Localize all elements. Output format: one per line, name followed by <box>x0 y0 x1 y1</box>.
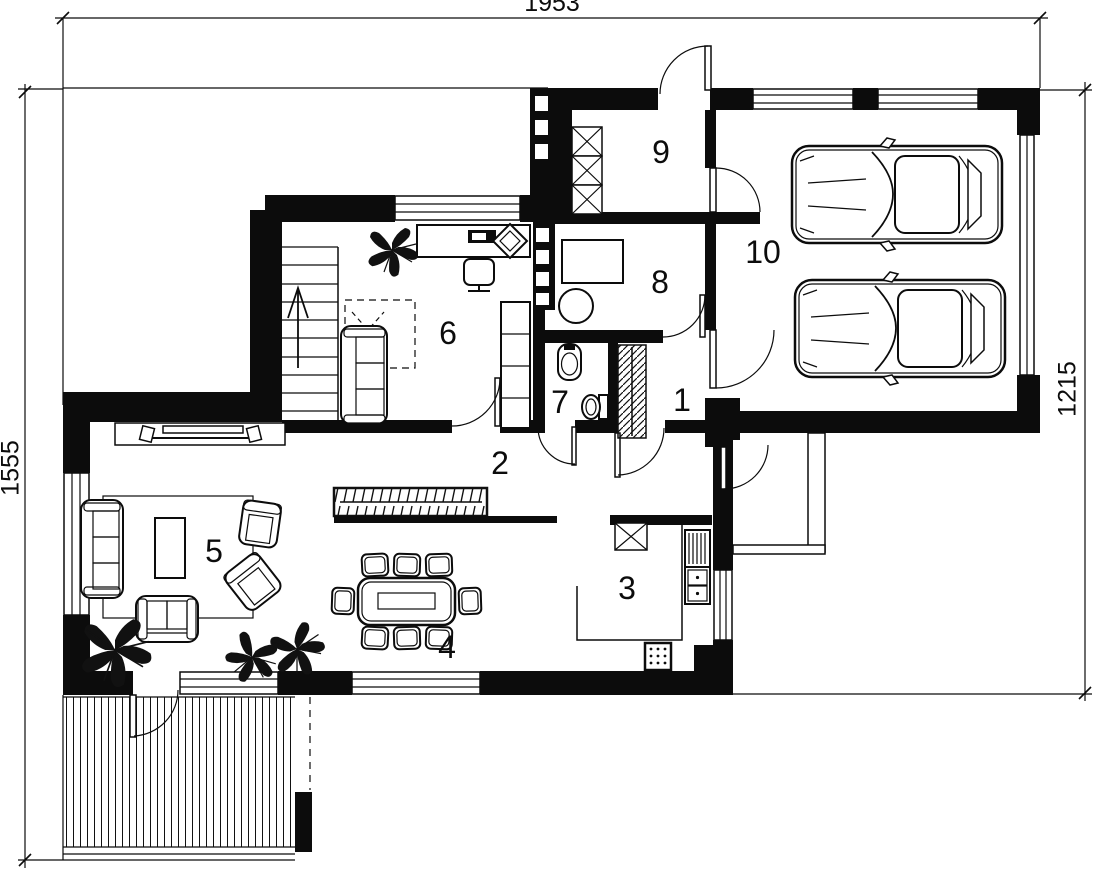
chair-icon <box>361 553 388 576</box>
plant-icon <box>367 228 419 279</box>
speaker-icon <box>246 426 261 442</box>
armchair-icon <box>238 500 282 549</box>
fridge-icon <box>685 530 710 567</box>
room-label-4: 4 <box>438 631 456 663</box>
chair-icon <box>332 588 355 615</box>
dining-table <box>358 578 455 625</box>
room-label-7: 7 <box>551 386 569 418</box>
office-window <box>395 196 520 220</box>
room-label-2: 2 <box>491 447 509 479</box>
living-south-window <box>180 672 278 694</box>
speaker-icon <box>139 426 154 442</box>
sofa-icon <box>81 500 123 598</box>
stove-icon <box>685 567 710 604</box>
garage-window <box>878 89 978 109</box>
low-wall <box>733 433 825 554</box>
pantry-cabinet-icon <box>615 523 647 550</box>
chair-icon <box>394 554 421 577</box>
garage-gate <box>1020 135 1034 375</box>
room8-furniture <box>559 240 623 323</box>
sink-icon <box>645 643 671 670</box>
room-label-1: 1 <box>673 384 691 416</box>
hall-wardrobe <box>334 488 557 523</box>
armchair-icon <box>222 551 283 613</box>
kitchen-furniture <box>577 523 710 670</box>
living-room-furniture <box>81 423 285 642</box>
door-room9-garage <box>710 168 760 212</box>
deck-post <box>295 792 312 852</box>
round-chair-icon <box>559 289 593 323</box>
door-hall-garage <box>710 330 774 388</box>
chair-icon <box>394 627 421 650</box>
room-label-8: 8 <box>651 266 669 298</box>
floor-plan: 1 2 3 4 5 6 7 8 9 10 1953 1555 1215 <box>0 0 1108 872</box>
sofa-icon <box>341 326 387 424</box>
washbasin-icon <box>558 344 581 380</box>
office-furniture <box>341 224 530 428</box>
room-label-9: 9 <box>652 136 670 168</box>
dimension-right: 1215 <box>1056 361 1081 417</box>
chair-icon <box>361 626 388 649</box>
office-chair-icon <box>464 259 494 291</box>
door-room6 <box>452 378 500 426</box>
coat-wardrobe <box>618 345 646 438</box>
kitchen-east-window <box>714 570 732 640</box>
room-label-5: 5 <box>205 535 223 567</box>
table <box>562 240 623 283</box>
car-icon <box>792 138 1002 251</box>
chair-icon <box>426 554 453 577</box>
dimension-left: 1555 <box>0 440 24 496</box>
dimension-top: 1953 <box>524 0 580 16</box>
door-room8 <box>663 295 705 337</box>
wardrobe-icon <box>572 127 602 214</box>
coffee-table <box>155 518 185 578</box>
stair-direction-arrow <box>288 288 308 368</box>
dining-furniture <box>332 553 482 649</box>
tv-icon <box>163 426 243 433</box>
toilet-icon <box>582 395 608 419</box>
dining-south-window <box>352 672 480 694</box>
room-label-6: 6 <box>439 317 457 349</box>
bookshelf-icon <box>501 302 530 428</box>
room-label-3: 3 <box>618 572 636 604</box>
room-label-10: 10 <box>745 236 781 268</box>
tv-console <box>115 423 285 445</box>
car-icon <box>795 272 1005 385</box>
garage-window <box>753 89 853 109</box>
chair-icon <box>459 588 482 615</box>
floor-plan-drawing <box>0 0 1108 872</box>
entrance-door <box>660 46 711 94</box>
loveseat-icon <box>136 596 198 642</box>
